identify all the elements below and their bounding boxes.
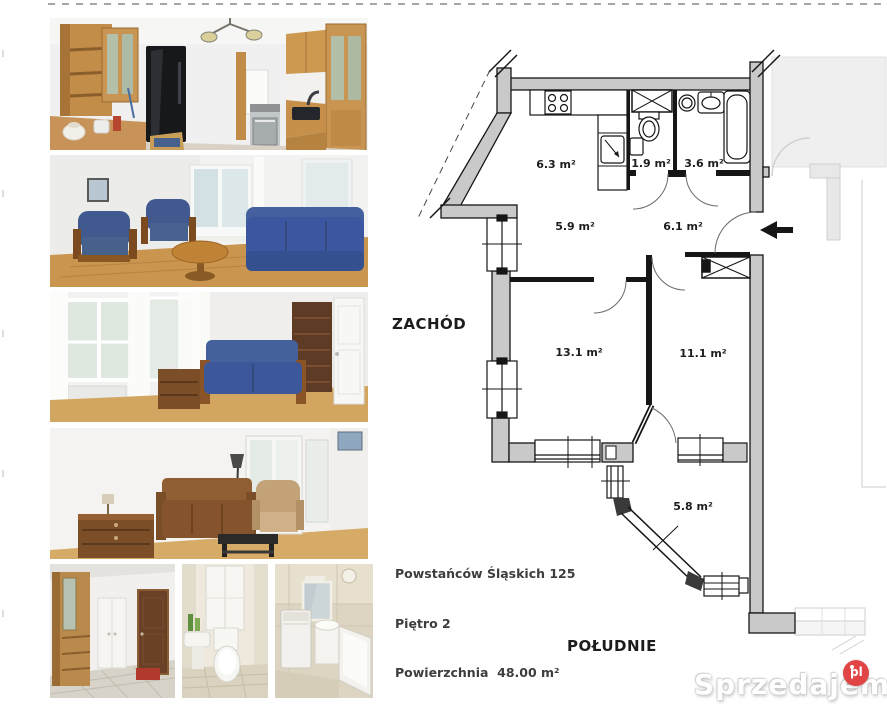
kitchen-fixtures [530,90,627,190]
direction-label-west: ZACHÓD [392,315,466,333]
room-label-room-medium: 11.1 m² [679,347,726,360]
entrance-arrow-icon [760,221,793,239]
listing-collage: 6.3 m² 1.9 m² 3.6 m² 5.9 m² 6.1 m² 13.1 … [0,0,887,720]
listing-info: Powstańców Śląskich 125 Piętro 2 Powierz… [395,533,575,715]
listing-area: Powierzchnia 48.00 m² [395,665,575,682]
room-label-hall-east: 6.1 m² [663,220,703,233]
room-label-room-large: 13.1 m² [555,346,602,359]
direction-label-south: POŁUDNIE [567,637,657,655]
room-label-balcony: 5.8 m² [673,500,713,513]
watermark: Sprzedajemy pl [694,668,879,708]
pillar-notch [606,446,616,459]
room-label-hall-west: 5.9 m² [555,220,595,233]
room-label-bathroom: 3.6 m² [684,157,724,170]
watermark-pl-badge: pl [843,660,869,686]
watermark-suffix: pl [850,665,863,679]
room-label-kitchen: 6.3 m² [536,158,576,171]
listing-floor: Piętro 2 [395,616,575,633]
neighbor-outline [772,57,886,654]
door-arcs [594,174,756,443]
room-label-wc: 1.9 m² [631,157,671,170]
balcony-door-leaf [634,405,652,443]
balcony-glazing [613,498,739,600]
listing-address: Powstańców Śląskich 125 [395,566,575,583]
